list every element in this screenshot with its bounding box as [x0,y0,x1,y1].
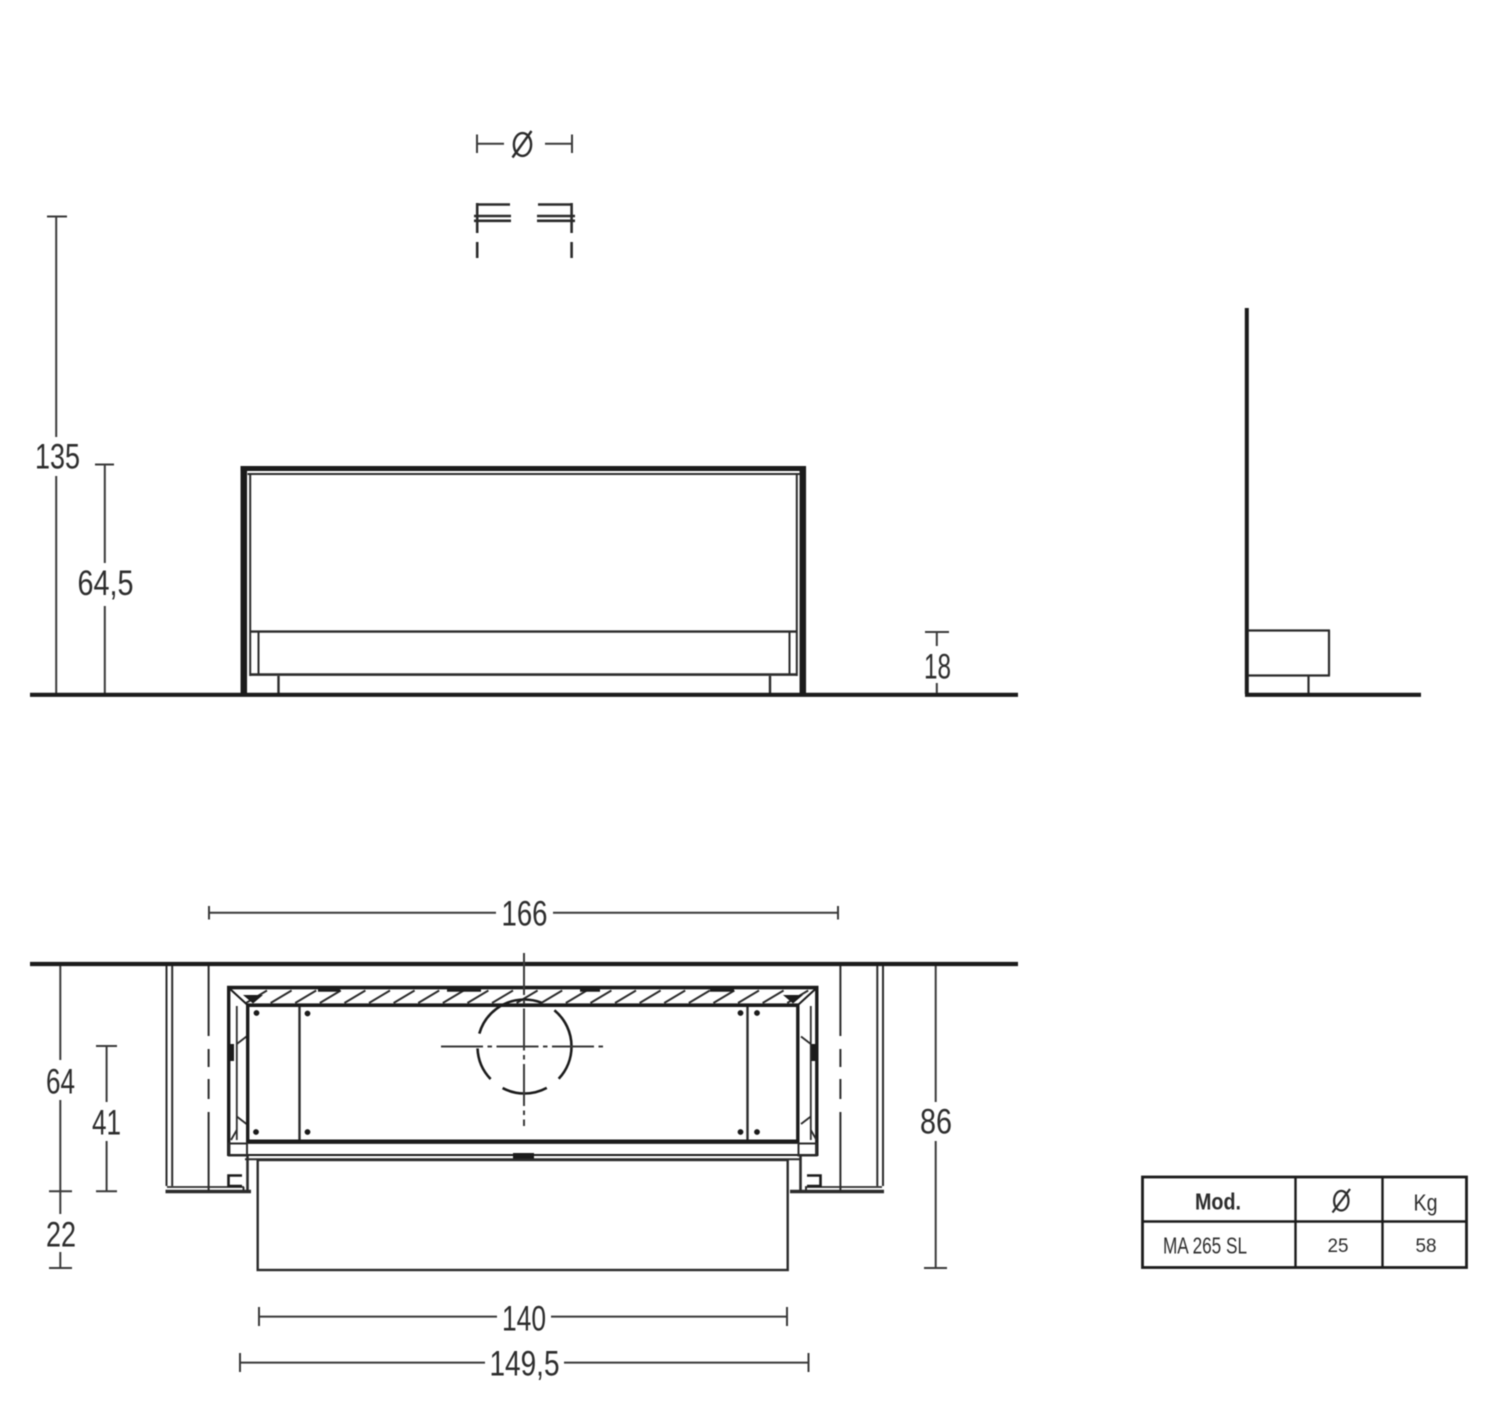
svg-text:Mod.: Mod. [1195,1189,1241,1215]
svg-text:86: 86 [920,1103,952,1142]
svg-text:18: 18 [924,648,951,687]
svg-text:41: 41 [92,1104,121,1143]
svg-text:149,5: 149,5 [490,1345,560,1384]
svg-text:140: 140 [502,1300,546,1339]
svg-text:135: 135 [35,438,80,477]
svg-text:58: 58 [1416,1235,1437,1257]
svg-text:166: 166 [502,895,548,934]
svg-text:22: 22 [46,1216,76,1255]
svg-text:64,5: 64,5 [78,564,134,603]
svg-text:Kg: Kg [1414,1190,1438,1216]
svg-text:MA 265 SL: MA 265 SL [1163,1233,1247,1259]
svg-text:64: 64 [46,1063,75,1102]
svg-text:25: 25 [1328,1235,1349,1257]
